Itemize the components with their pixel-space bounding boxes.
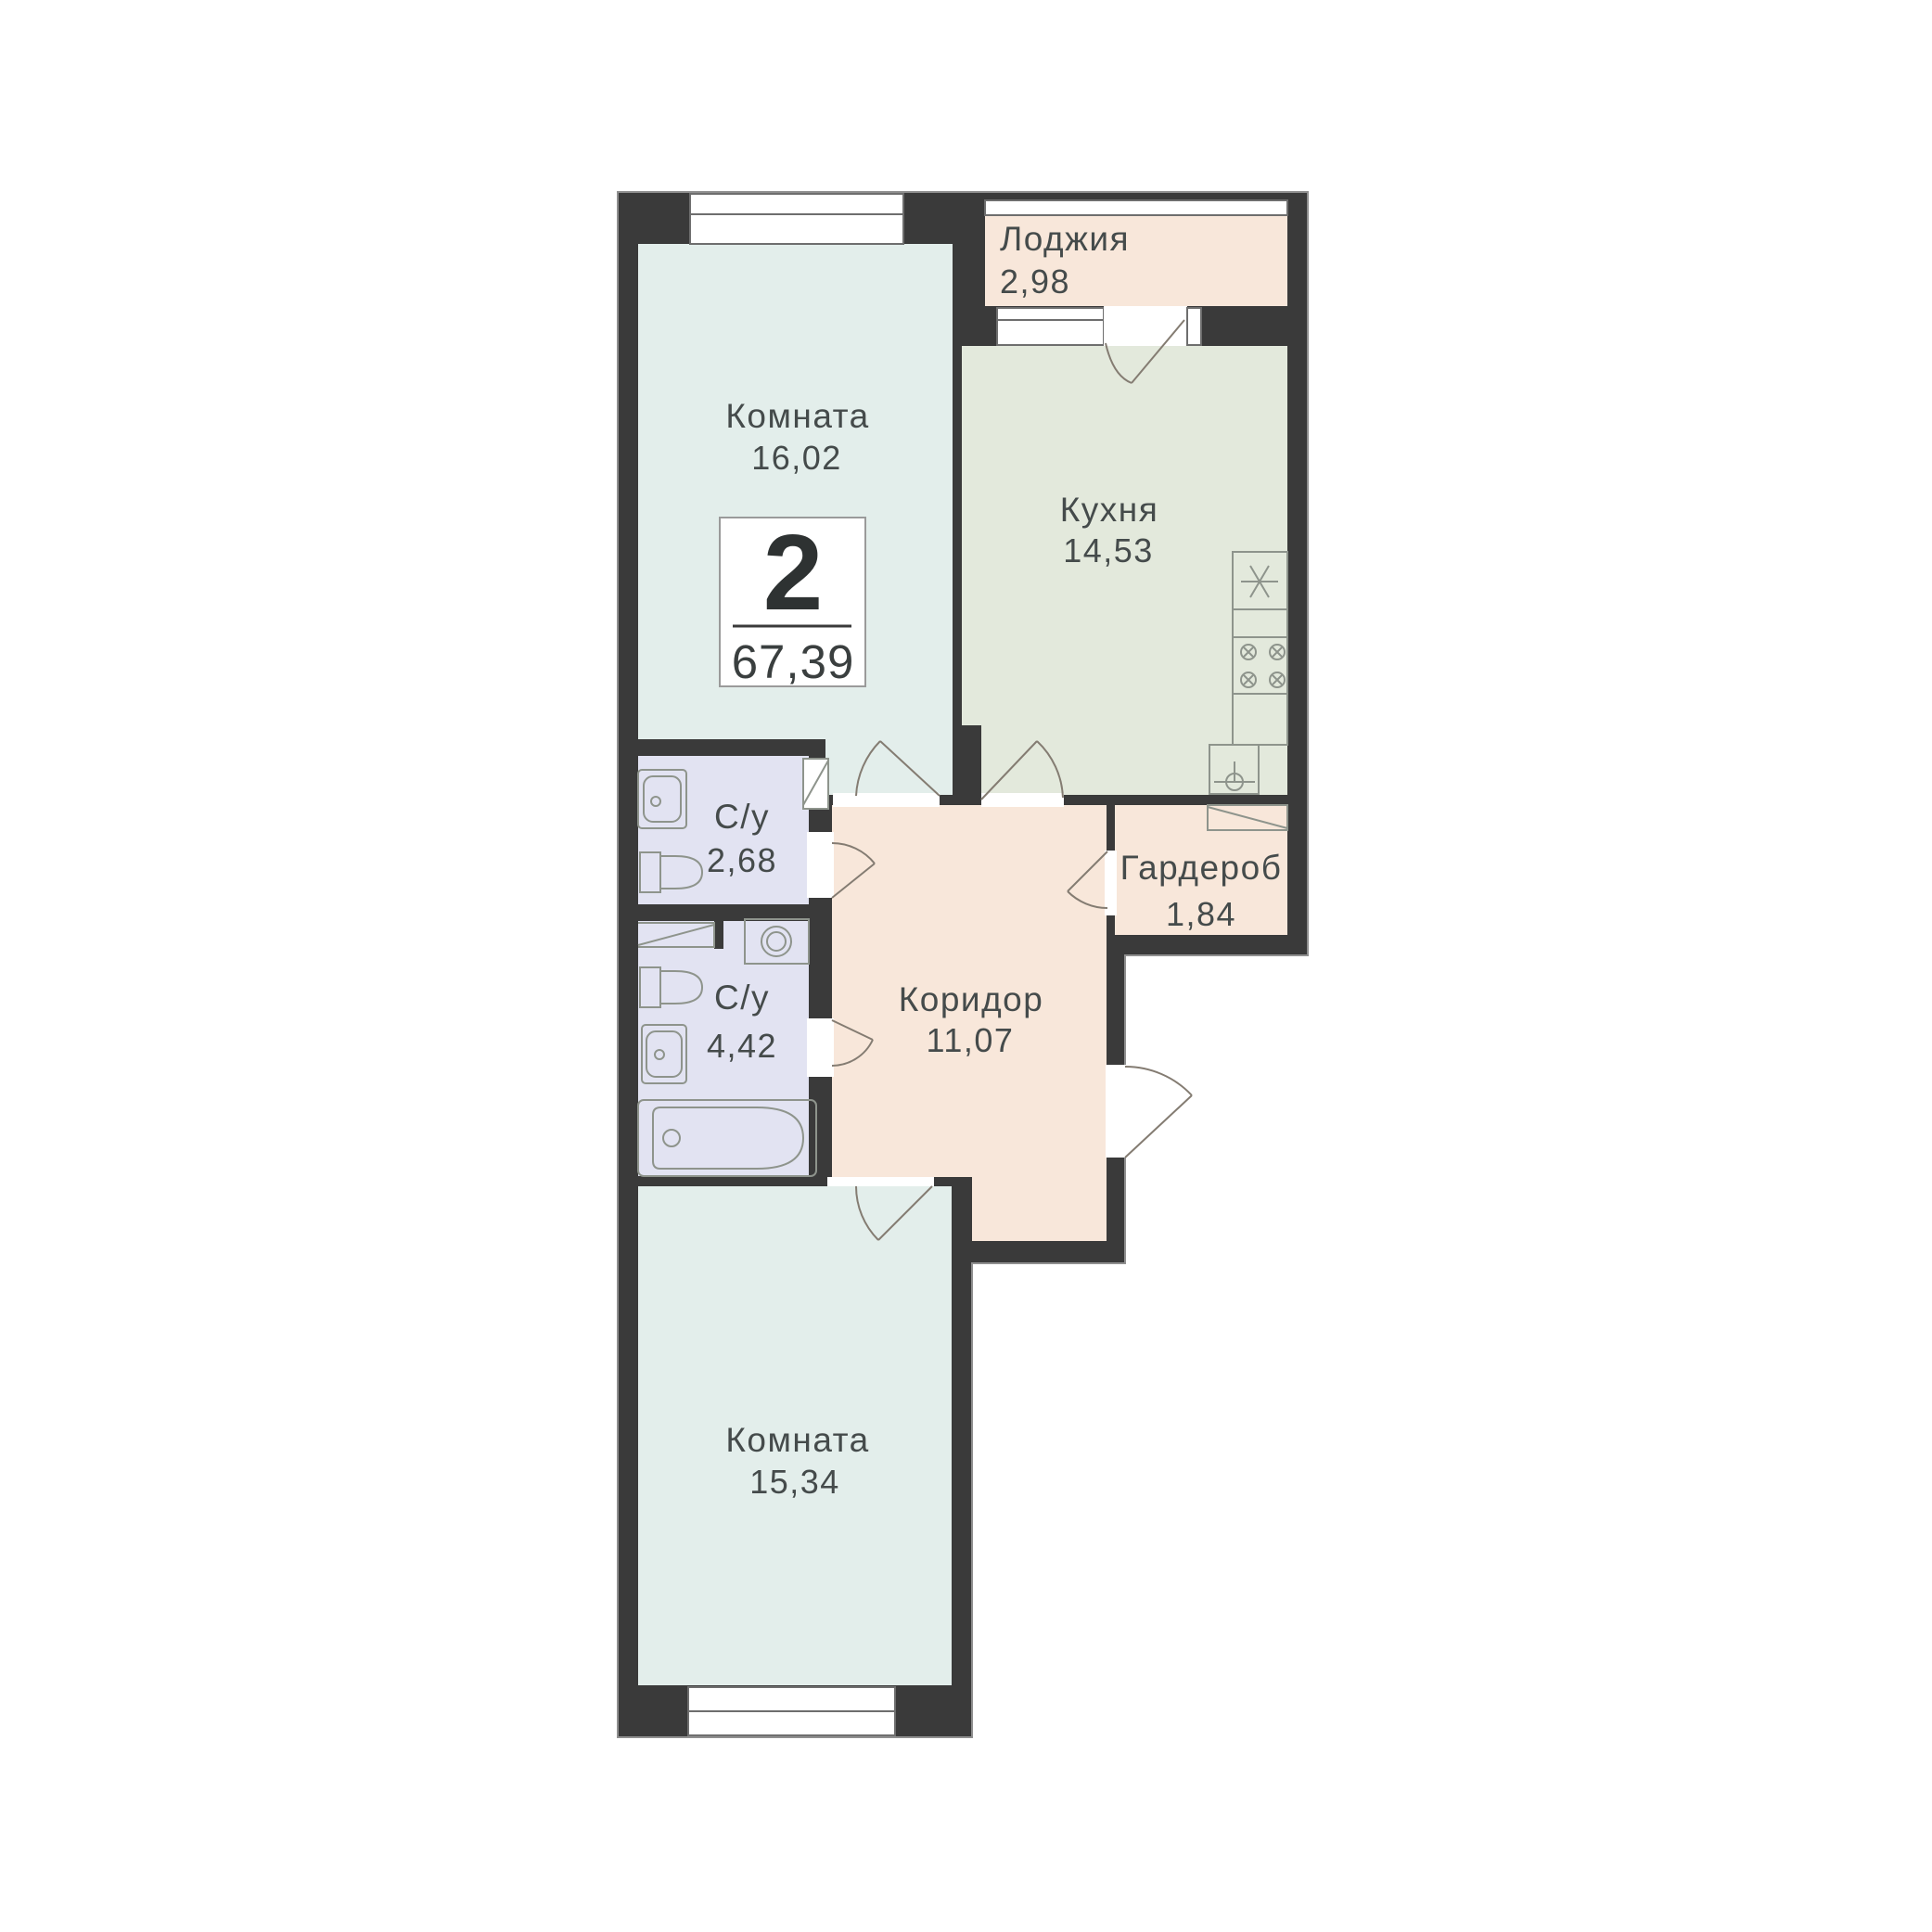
window-icon: [997, 308, 1104, 345]
room-label: С/у: [714, 798, 770, 836]
wall-stub-bath: [714, 921, 723, 949]
door-opening-entrance: [1106, 1065, 1133, 1158]
door-opening-wardrobe: [1105, 851, 1117, 915]
room-label: Комната: [725, 1421, 869, 1459]
badge-room-count: 2: [763, 512, 824, 633]
apartment-badge: 2 67,39: [720, 512, 865, 688]
room-area: 4,42: [707, 1027, 777, 1065]
room-area: 15,34: [749, 1463, 840, 1501]
room-area: 14,53: [1063, 531, 1154, 569]
door-opening-bath-large: [807, 1018, 834, 1077]
room-area: 2,68: [707, 841, 777, 879]
loggia-glazing: [985, 200, 1287, 215]
room-label: Гардероб: [1120, 849, 1283, 887]
door-opening-kitchen: [981, 793, 1064, 807]
window-icon: [690, 194, 903, 244]
wall-block-kitchen-divider: [953, 725, 981, 805]
room-kitchen: [962, 346, 1287, 795]
room-label: С/у: [714, 979, 770, 1017]
badge-total-area: 67,39: [732, 635, 855, 688]
floor-plan: Комната 16,02 Кухня 14,53 Лоджия 2,98 С/…: [0, 0, 1932, 1932]
room-area: 1,84: [1166, 895, 1236, 933]
room-label: Лоджия: [1000, 220, 1130, 258]
room-label: Комната: [725, 397, 869, 435]
balcony-sidelight: [1187, 308, 1201, 345]
door-swing-icon: [1125, 1067, 1192, 1158]
room-area: 2,98: [1000, 262, 1070, 301]
door-opening-room2: [827, 1177, 934, 1186]
balcony-door-opening: [1104, 306, 1187, 346]
room-label: Кухня: [1060, 491, 1159, 529]
door-opening-bath-small: [807, 832, 834, 898]
shelf-icon: [803, 759, 828, 809]
room-area: 11,07: [927, 1021, 1015, 1059]
room-label: Коридор: [899, 980, 1044, 1018]
door-opening-room1: [833, 793, 940, 807]
floor-plan-page: Комната 16,02 Кухня 14,53 Лоджия 2,98 С/…: [0, 0, 1932, 1932]
room-area: 16,02: [751, 439, 842, 477]
